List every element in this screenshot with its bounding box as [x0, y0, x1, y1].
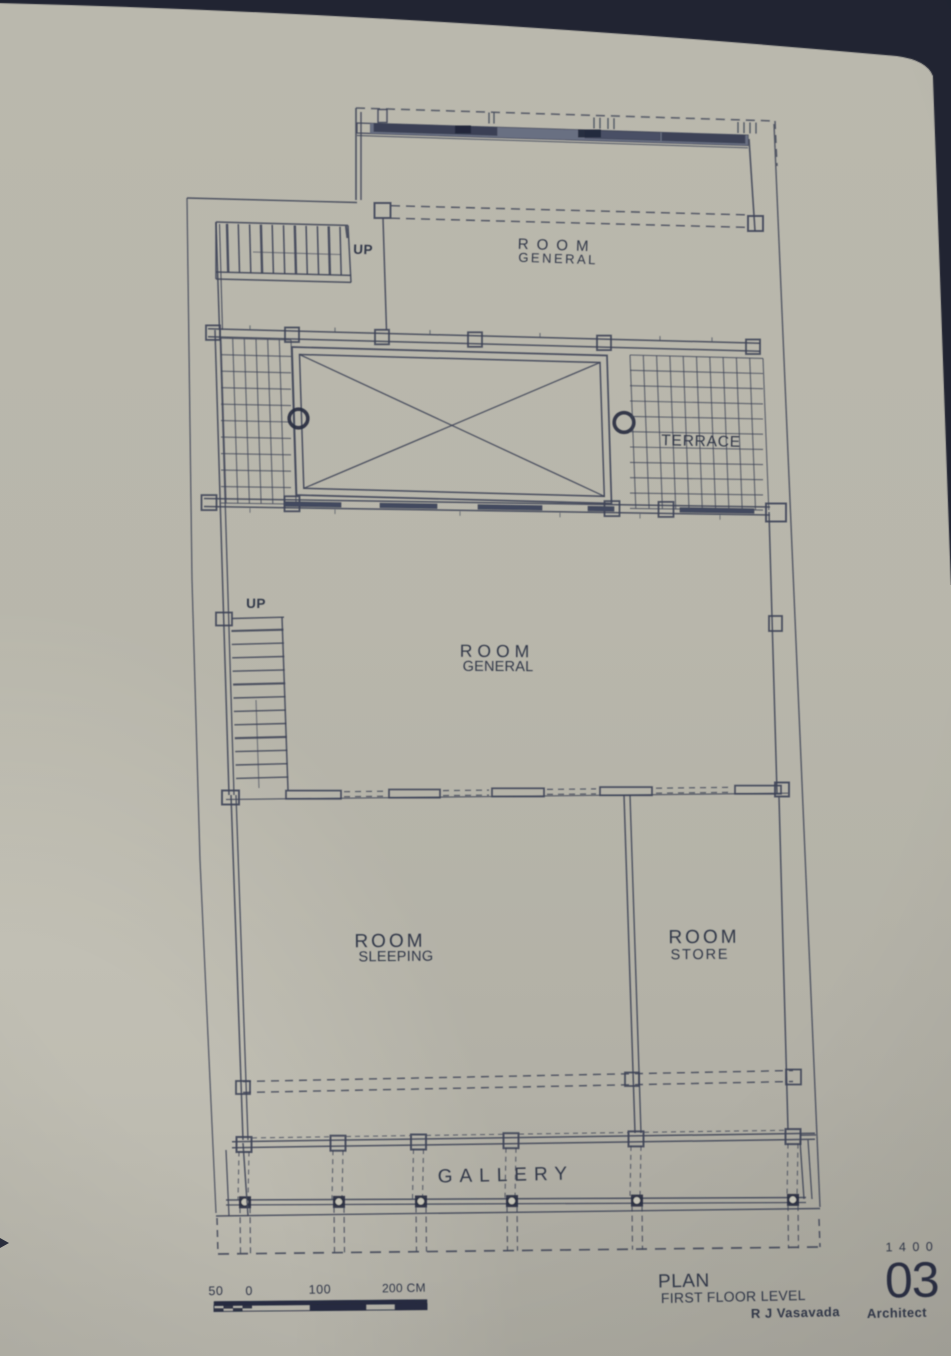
svg-text:TERRACE: TERRACE [661, 432, 741, 451]
svg-text:50: 50 [208, 1284, 223, 1298]
svg-text:GENERAL: GENERAL [463, 659, 534, 675]
svg-text:0: 0 [245, 1284, 252, 1298]
svg-text:03: 03 [884, 1252, 939, 1309]
svg-text:200 CM: 200 CM [382, 1281, 426, 1296]
svg-text:R J Vasavada: R J Vasavada [751, 1304, 841, 1321]
svg-text:GENERAL: GENERAL [518, 250, 598, 267]
svg-text:SLEEPING: SLEEPING [358, 949, 433, 966]
svg-text:UP: UP [353, 242, 373, 258]
svg-text:UP: UP [246, 596, 266, 611]
svg-text:STORE: STORE [671, 947, 730, 964]
svg-text:100: 100 [309, 1282, 332, 1296]
svg-text:ROOM: ROOM [668, 927, 739, 949]
svg-text:FIRST FLOOR LEVEL: FIRST FLOOR LEVEL [661, 1287, 806, 1306]
